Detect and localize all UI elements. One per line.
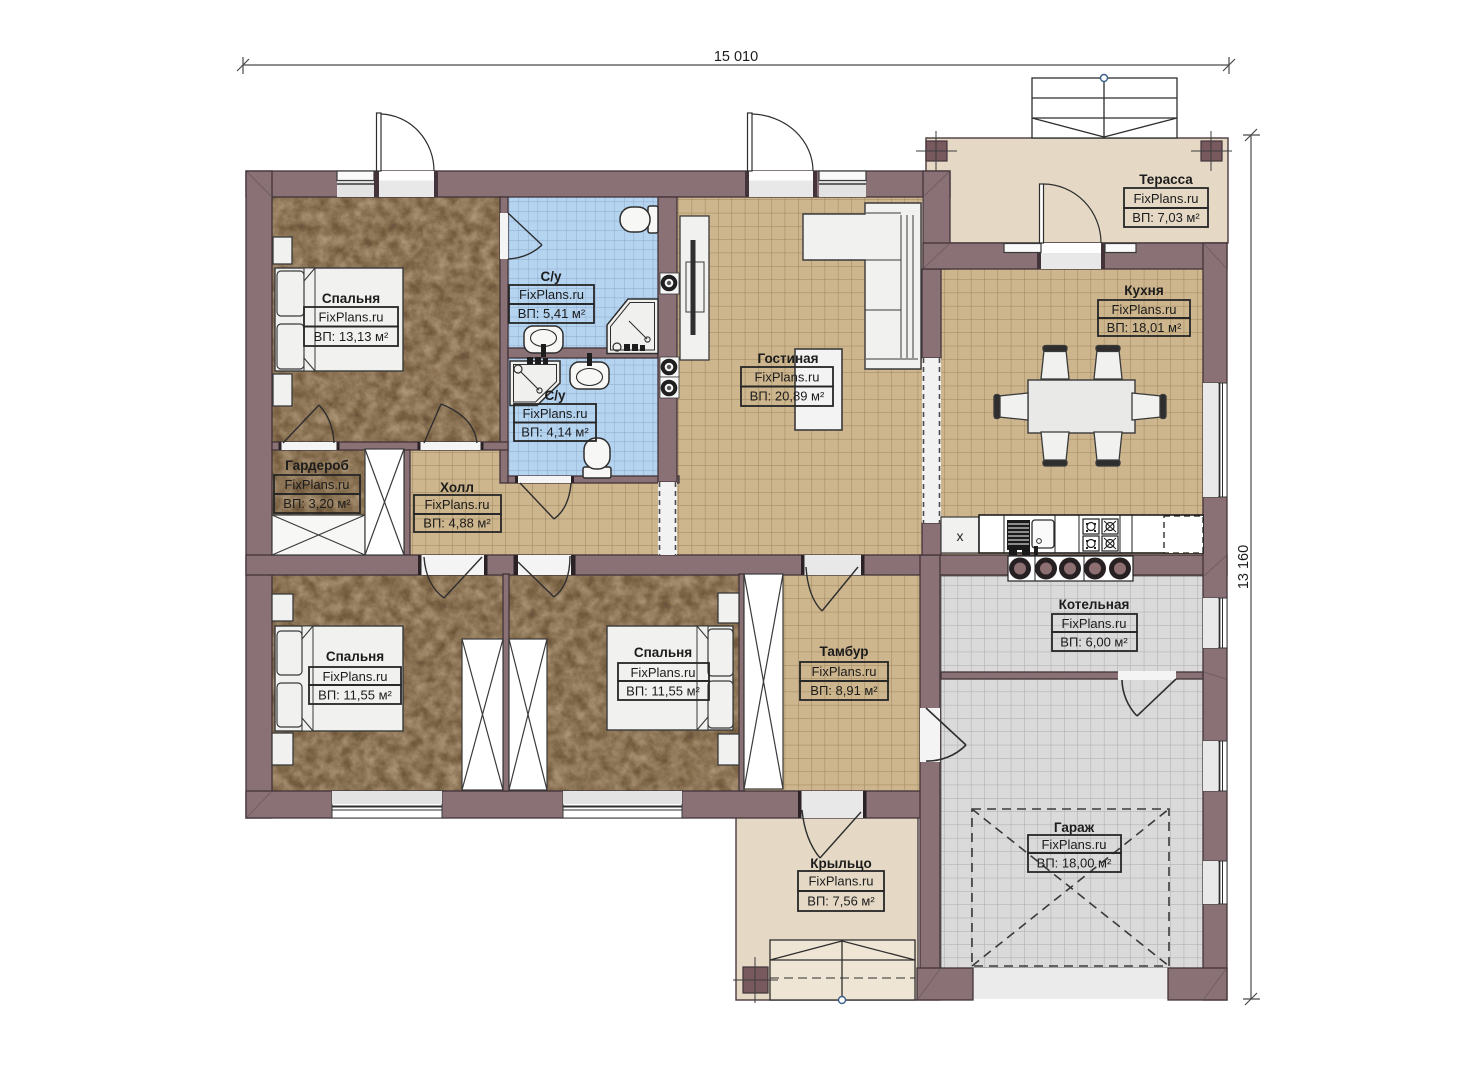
svg-text:С/у: С/у: [540, 269, 562, 284]
svg-text:Спальня: Спальня: [326, 649, 384, 664]
svg-text:Кухня: Кухня: [1124, 283, 1163, 298]
svg-text:ВП: 18,01 м²: ВП: 18,01 м²: [1107, 320, 1182, 335]
svg-text:FixPlans.ru: FixPlans.ru: [284, 477, 349, 492]
svg-text:Терасса: Терасса: [1139, 172, 1193, 187]
svg-text:FixPlans.ru: FixPlans.ru: [322, 669, 387, 684]
svg-text:Гостиная: Гостиная: [757, 351, 818, 366]
svg-text:ВП: 18,00 м²: ВП: 18,00 м²: [1037, 856, 1112, 871]
svg-text:FixPlans.ru: FixPlans.ru: [630, 665, 695, 680]
svg-text:FixPlans.ru: FixPlans.ru: [424, 497, 489, 512]
svg-text:FixPlans.ru: FixPlans.ru: [811, 664, 876, 679]
svg-text:FixPlans.ru: FixPlans.ru: [1111, 302, 1176, 317]
svg-text:Холл: Холл: [440, 480, 474, 495]
svg-text:Спальня: Спальня: [634, 645, 692, 660]
svg-text:ВП: 13,13 м²: ВП: 13,13 м²: [314, 329, 389, 344]
svg-text:Гардероб: Гардероб: [285, 458, 349, 473]
svg-text:ВП: 20,89 м²: ВП: 20,89 м²: [750, 389, 825, 404]
svg-text:Спальня: Спальня: [322, 291, 380, 306]
svg-text:ВП: 4,14 м²: ВП: 4,14 м²: [521, 425, 589, 440]
svg-text:FixPlans.ru: FixPlans.ru: [754, 370, 819, 385]
svg-text:ВП: 3,20 м²: ВП: 3,20 м²: [283, 496, 351, 511]
svg-text:FixPlans.ru: FixPlans.ru: [1133, 191, 1198, 206]
svg-text:FixPlans.ru: FixPlans.ru: [1061, 616, 1126, 631]
svg-text:Тамбур: Тамбур: [820, 644, 869, 659]
svg-text:ВП: 7,03 м²: ВП: 7,03 м²: [1132, 210, 1200, 225]
svg-text:ВП: 4,88 м²: ВП: 4,88 м²: [423, 516, 491, 531]
svg-text:ВП: 6,00 м²: ВП: 6,00 м²: [1060, 635, 1128, 650]
svg-text:FixPlans.ru: FixPlans.ru: [808, 874, 873, 889]
svg-text:ВП: 8,91 м²: ВП: 8,91 м²: [810, 683, 878, 698]
svg-text:FixPlans.ru: FixPlans.ru: [522, 406, 587, 421]
svg-text:ВП: 7,56 м²: ВП: 7,56 м²: [807, 894, 875, 909]
svg-text:Крыльцо: Крыльцо: [810, 856, 871, 871]
svg-text:С/у: С/у: [544, 388, 566, 403]
svg-text:ВП: 11,55 м²: ВП: 11,55 м²: [318, 688, 392, 703]
svg-text:FixPlans.ru: FixPlans.ru: [519, 287, 584, 302]
svg-text:FixPlans.ru: FixPlans.ru: [1041, 837, 1106, 852]
svg-text:FixPlans.ru: FixPlans.ru: [318, 310, 383, 325]
svg-text:15 010: 15 010: [714, 49, 758, 65]
svg-text:Котельная: Котельная: [1059, 597, 1130, 612]
svg-text:13 160: 13 160: [1236, 545, 1252, 589]
svg-text:ВП: 11,55 м²: ВП: 11,55 м²: [626, 684, 700, 699]
svg-text:x: x: [957, 528, 964, 544]
svg-text:ВП: 5,41 м²: ВП: 5,41 м²: [518, 306, 586, 321]
svg-text:Гараж: Гараж: [1054, 820, 1095, 835]
